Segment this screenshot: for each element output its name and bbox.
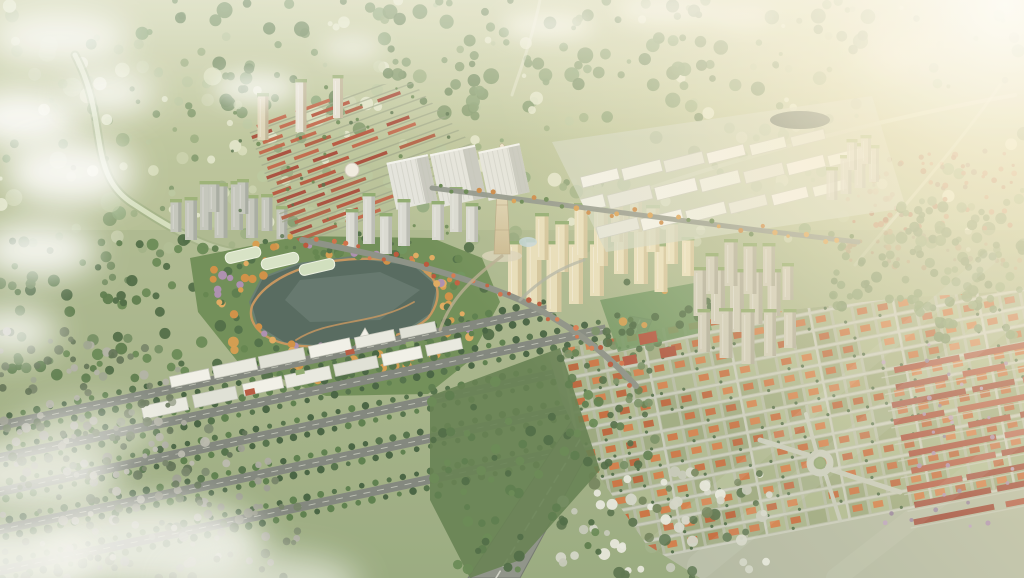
aerial-masterplan-render (0, 0, 1024, 578)
warm-grade (0, 0, 1024, 578)
render-canvas (0, 0, 1024, 578)
